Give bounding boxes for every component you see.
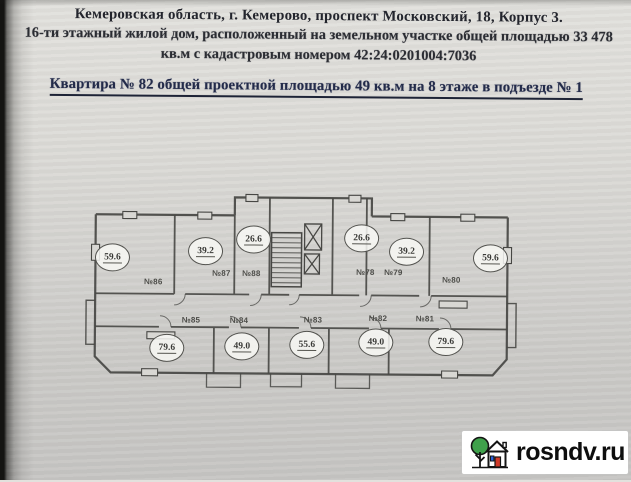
house-icon <box>486 441 508 467</box>
watermark-text: rosndv.ru <box>516 440 625 465</box>
staircase <box>271 233 301 287</box>
area-badge: 59.6 <box>473 244 508 272</box>
apartment-number: №84 <box>230 316 248 325</box>
area-badge: 59.6 <box>95 243 130 271</box>
apartment-number: №86 <box>144 277 162 286</box>
apartment-number: №83 <box>304 315 322 324</box>
area-badge: 79.6 <box>149 334 184 362</box>
site-watermark: rosndv.ru <box>462 431 628 474</box>
floor-plan-drawing <box>0 0 631 482</box>
area-badge: 79.6 <box>428 328 463 356</box>
floor-plan: 59.6 39.2 26.6 26.6 39.2 59.6 79.6 49.0 … <box>0 0 631 482</box>
balconies <box>206 373 369 388</box>
apartment-number: №80 <box>442 275 460 284</box>
elevator-shafts <box>304 224 321 274</box>
area-badge: 26.6 <box>236 225 271 253</box>
area-badge: 49.0 <box>224 332 259 360</box>
tree-icon <box>472 437 489 467</box>
apartment-number: №78 <box>356 268 374 277</box>
apartment-number: №85 <box>182 315 200 324</box>
area-badge: 55.6 <box>289 331 324 359</box>
area-badge: 49.0 <box>358 328 393 356</box>
area-badge: 26.6 <box>344 224 379 252</box>
apartment-number: №79 <box>384 268 402 277</box>
apartment-number: №82 <box>369 314 387 323</box>
area-badge: 39.2 <box>188 237 223 265</box>
apartment-number: №88 <box>242 269 260 278</box>
area-badge: 39.2 <box>389 238 424 266</box>
house-tree-logo-icon <box>470 435 510 471</box>
document-page: Кемеровская область, г. Кемерово, проспе… <box>0 0 631 482</box>
apartment-number: №87 <box>212 269 230 278</box>
apartment-number: №81 <box>416 314 434 323</box>
